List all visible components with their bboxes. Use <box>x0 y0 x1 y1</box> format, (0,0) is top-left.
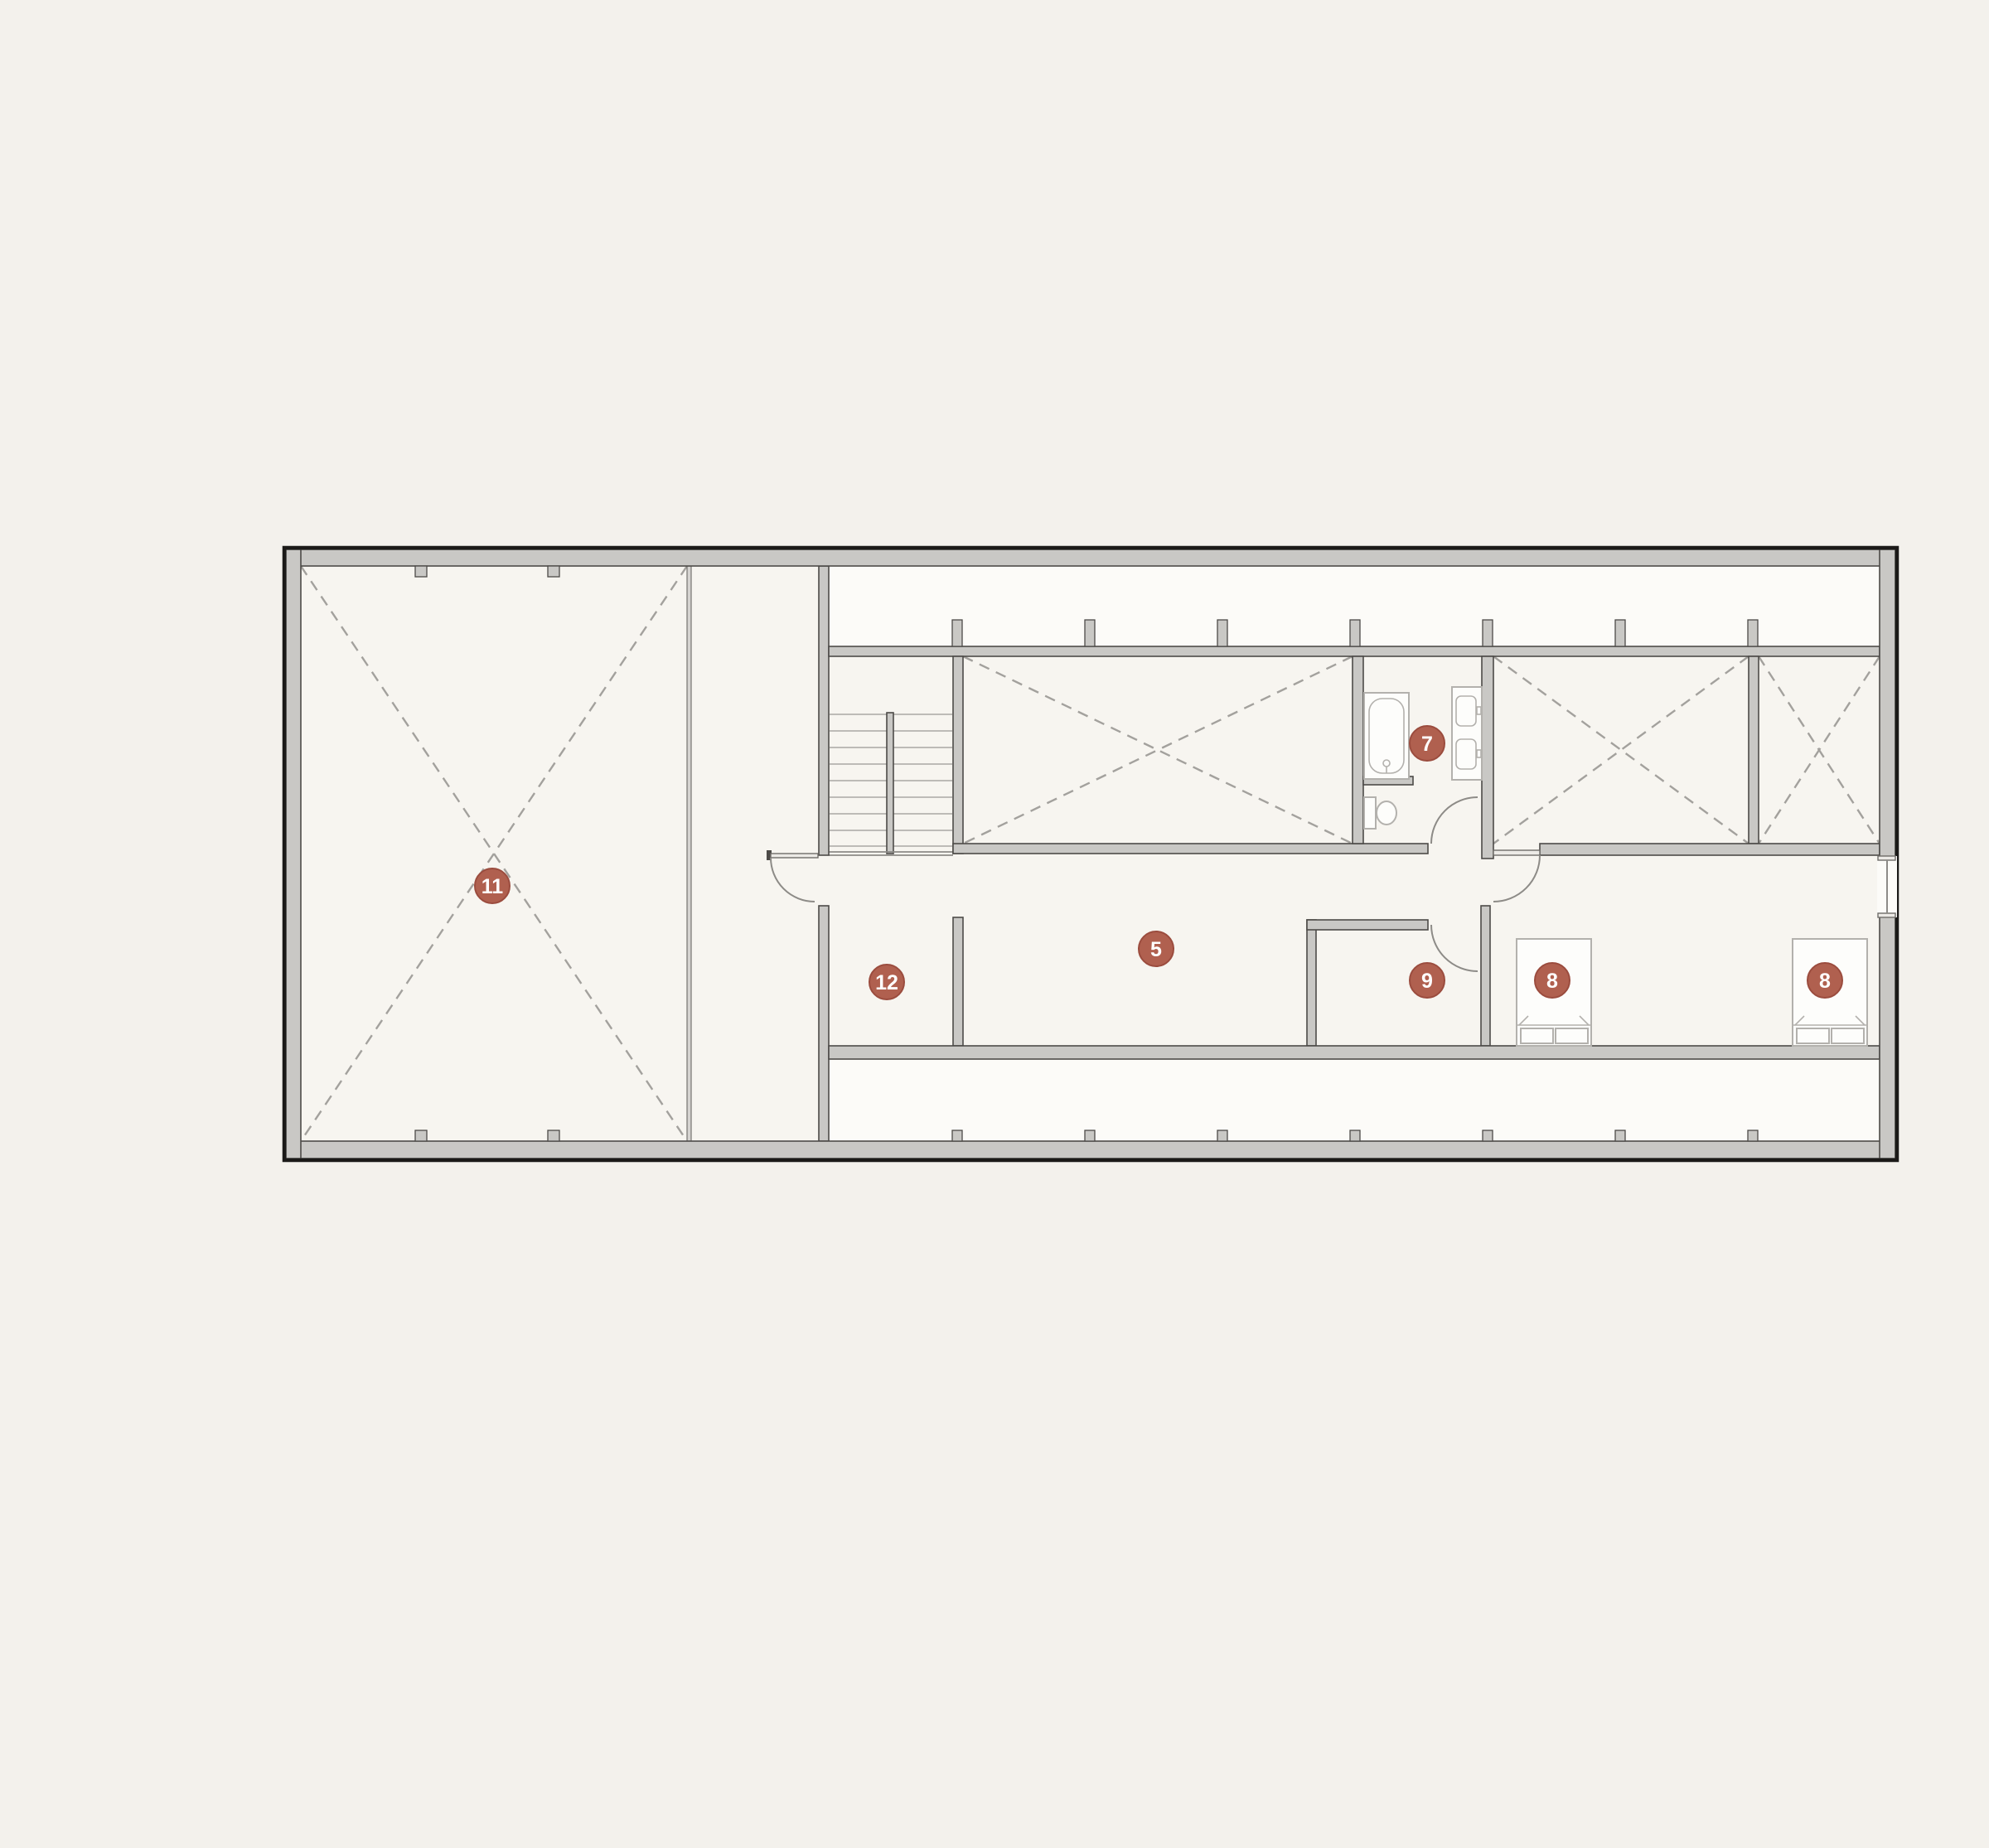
lower-rooms-south-wall <box>829 1046 1880 1059</box>
column-tick <box>1217 1130 1227 1141</box>
divider-wall-upper <box>819 566 829 855</box>
column-tick <box>415 1130 427 1141</box>
bed-pillow <box>1521 1028 1553 1043</box>
room-marker-label: 8 <box>1819 970 1831 993</box>
column-tick <box>548 1130 559 1141</box>
door-leaf <box>1493 850 1540 855</box>
bed-pillow <box>1797 1028 1829 1043</box>
room12-east-wall <box>953 917 963 1046</box>
bathroom-east-wall <box>1482 656 1493 859</box>
column-tick <box>1085 620 1095 646</box>
column-tick <box>952 620 962 646</box>
column-tick <box>1615 620 1625 646</box>
outer-wall-left <box>286 549 301 1159</box>
column-tick <box>548 566 559 577</box>
bathtub-icon <box>1364 693 1409 779</box>
room-marker-label: 8 <box>1546 970 1558 993</box>
bedroom-north-wall <box>1540 844 1880 855</box>
bathroom-west-wall <box>1353 656 1363 844</box>
room9-east-wall <box>1481 906 1490 1046</box>
column-tick <box>1483 1130 1493 1141</box>
column-tick <box>1085 1130 1095 1141</box>
column-tick <box>1350 620 1360 646</box>
column-tick <box>1350 1130 1360 1141</box>
room9-west-wall <box>1307 920 1316 1046</box>
vanity-icon <box>1452 687 1482 780</box>
outer-wall-bottom <box>286 1141 1895 1159</box>
outer-wall-top <box>286 549 1895 566</box>
deck-inner-wall <box>829 646 1880 656</box>
window-jamb <box>1878 913 1895 917</box>
room-marker-label: 11 <box>482 875 504 898</box>
column-tick <box>415 566 427 577</box>
stair-stringer-wall <box>887 713 893 854</box>
room-marker-label: 12 <box>875 971 898 994</box>
bed-pillow <box>1556 1028 1588 1043</box>
bed-pillow <box>1832 1028 1864 1043</box>
column-tick <box>1217 620 1227 646</box>
room-marker-label: 7 <box>1421 733 1433 756</box>
top-row-south-wall <box>953 844 1428 854</box>
window-jamb <box>1878 856 1895 860</box>
room9-north-wall <box>1307 920 1428 930</box>
room-marker-label: 5 <box>1150 938 1162 961</box>
column-tick <box>1483 620 1493 646</box>
right-wall-window <box>1877 856 1897 917</box>
door-leaf <box>771 854 818 858</box>
page-background: { "figure": "architectural floor plan, u… <box>0 0 1989 1848</box>
stairwell-east-wall <box>953 656 963 854</box>
floor-plan: 111259788 <box>0 0 1989 1848</box>
column-tick <box>1748 1130 1758 1141</box>
toilet-bowl <box>1377 801 1396 825</box>
column-tick <box>1615 1130 1625 1141</box>
column-tick <box>952 1130 962 1141</box>
bottom-deck-band <box>829 1059 1880 1141</box>
divider-wall-lower <box>819 906 829 1141</box>
closet-divider-wall <box>1749 656 1759 844</box>
toilet-tank <box>1364 797 1376 829</box>
column-tick <box>1748 620 1758 646</box>
outer-wall-right <box>1880 549 1895 1159</box>
room-marker-label: 9 <box>1421 970 1433 993</box>
void-edge-wall <box>687 566 691 1141</box>
